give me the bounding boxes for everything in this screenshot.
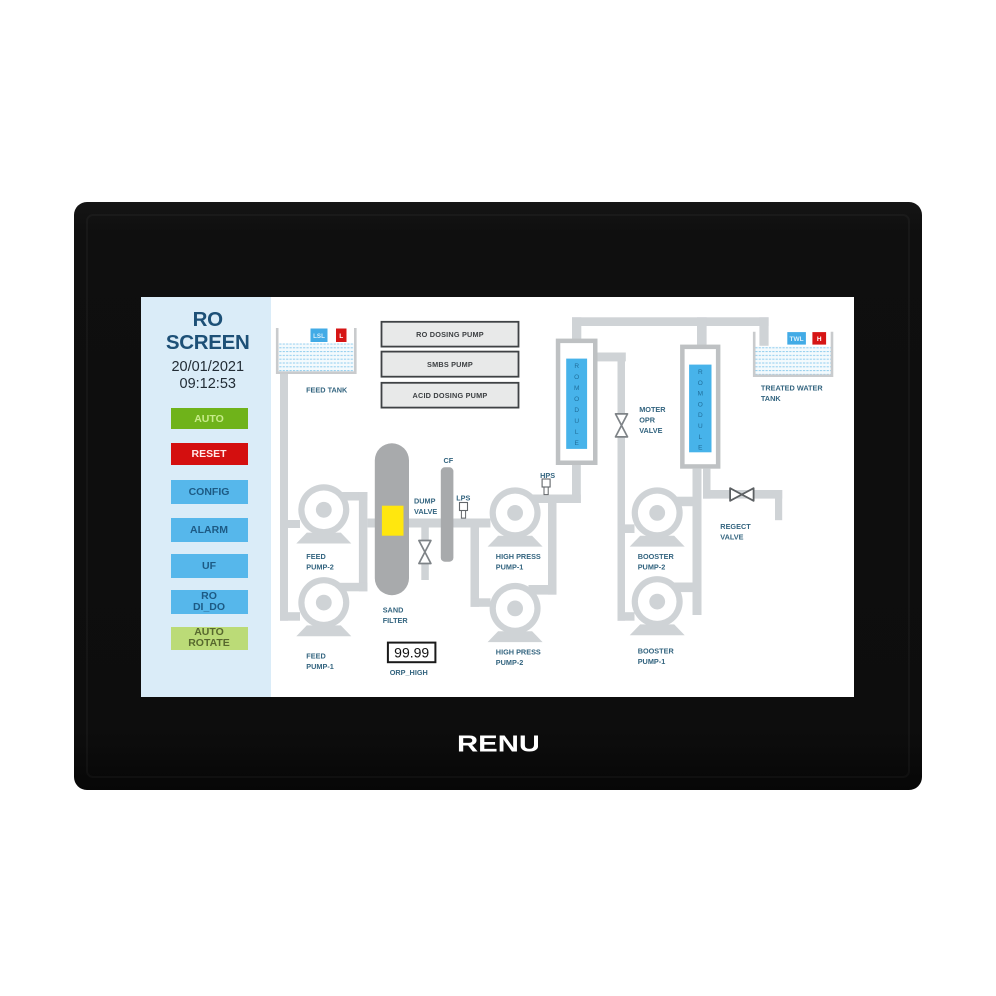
- svg-text:O: O: [697, 401, 702, 408]
- svg-text:BOOSTER: BOOSTER: [637, 647, 674, 656]
- svg-text:OPR: OPR: [639, 416, 656, 425]
- svg-text:99.99: 99.99: [394, 644, 429, 660]
- svg-text:ORP_HIGH: ORP_HIGH: [389, 668, 427, 677]
- svg-text:PUMP-2: PUMP-2: [637, 563, 665, 572]
- svg-text:VALVE: VALVE: [639, 426, 662, 435]
- svg-text:FILTER: FILTER: [382, 616, 408, 625]
- svg-text:SMBS PUMP: SMBS PUMP: [427, 360, 473, 369]
- svg-text:FEED TANK: FEED TANK: [306, 386, 348, 395]
- svg-text:PUMP-2: PUMP-2: [306, 563, 334, 572]
- svg-text:U: U: [697, 423, 702, 430]
- svg-text:H: H: [816, 336, 821, 343]
- svg-text:D: D: [697, 412, 702, 419]
- svg-text:TREATED WATER: TREATED WATER: [760, 384, 822, 393]
- svg-text:HIGH PRESS: HIGH PRESS: [495, 552, 540, 561]
- svg-text:PUMP-1: PUMP-1: [306, 662, 334, 671]
- svg-text:FEED: FEED: [306, 652, 325, 661]
- svg-text:R: R: [697, 369, 702, 376]
- svg-text:LPS: LPS: [456, 493, 470, 502]
- svg-text:MOTER: MOTER: [639, 405, 666, 414]
- svg-text:RO DOSING PUMP: RO DOSING PUMP: [416, 330, 484, 339]
- svg-text:U: U: [574, 418, 579, 425]
- svg-text:HIGH PRESS: HIGH PRESS: [495, 648, 540, 657]
- svg-text:O: O: [574, 396, 579, 403]
- svg-text:O: O: [574, 374, 579, 381]
- svg-text:E: E: [698, 445, 703, 452]
- svg-text:SAND: SAND: [382, 606, 403, 615]
- svg-text:O: O: [697, 380, 702, 387]
- svg-text:M: M: [573, 385, 578, 392]
- svg-text:RENU: RENU: [458, 733, 538, 753]
- svg-text:TWL: TWL: [789, 336, 803, 343]
- svg-text:ACID DOSING PUMP: ACID DOSING PUMP: [412, 391, 487, 400]
- svg-text:D: D: [574, 407, 579, 414]
- svg-text:CF: CF: [443, 456, 453, 465]
- svg-text:E: E: [574, 440, 579, 447]
- svg-text:DUMP: DUMP: [414, 496, 436, 505]
- svg-text:L: L: [339, 333, 343, 340]
- svg-text:HPS: HPS: [540, 471, 555, 480]
- svg-text:BOOSTER: BOOSTER: [637, 552, 674, 561]
- svg-text:VALVE: VALVE: [720, 533, 743, 542]
- svg-text:REGECT: REGECT: [720, 522, 751, 531]
- svg-text:PUMP-1: PUMP-1: [495, 563, 523, 572]
- svg-text:M: M: [697, 391, 702, 398]
- svg-text:L: L: [698, 434, 702, 441]
- svg-text:R: R: [574, 363, 579, 370]
- svg-text:VALVE: VALVE: [414, 507, 437, 516]
- svg-text:PUMP-1: PUMP-1: [637, 657, 665, 666]
- svg-text:LSL: LSL: [313, 333, 325, 340]
- svg-text:PUMP-2: PUMP-2: [495, 658, 523, 667]
- svg-text:FEED: FEED: [306, 552, 325, 561]
- svg-text:L: L: [574, 429, 578, 436]
- svg-text:TANK: TANK: [760, 394, 780, 403]
